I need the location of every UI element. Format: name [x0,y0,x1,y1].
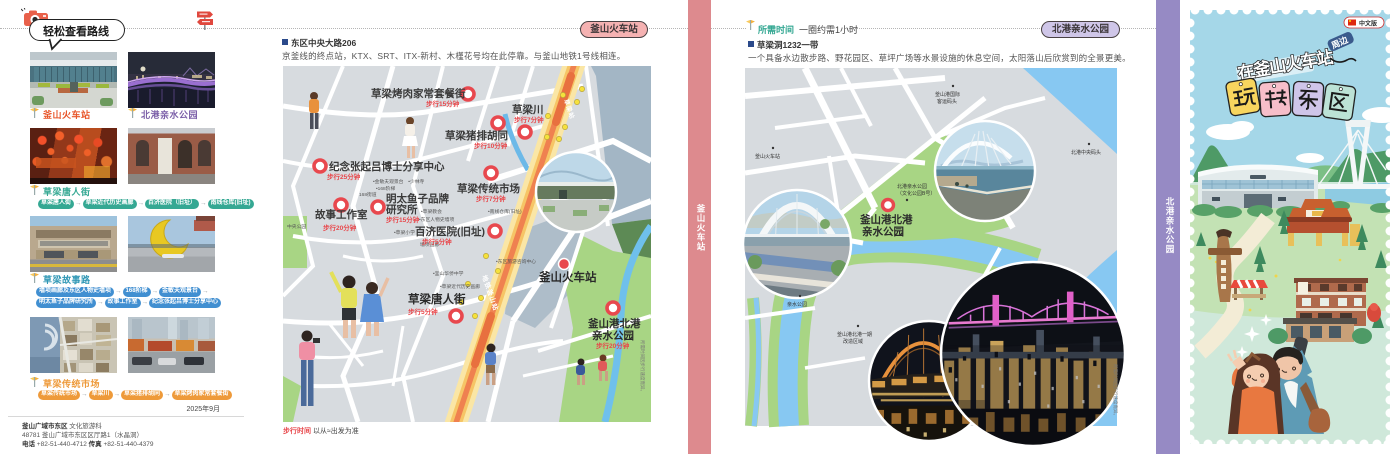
svg-text:步行25分钟: 步行25分钟 [327,172,361,181]
svg-text:草梁猪排胡同: 草梁猪排胡同 [445,129,508,142]
svg-text:步行15分钟: 步行15分钟 [426,99,460,108]
svg-text:所需时间因步行速度而异。: 所需时间因步行速度而异。 [639,340,646,394]
svg-text:•草梁教会: •草梁教会 [421,208,442,215]
svg-text:（文化公园B号）: （文化公园B号） [897,190,935,197]
svg-text:亲水公园: 亲水公园 [787,301,807,308]
svg-text:客运码头: 客运码头 [937,98,957,105]
svg-text:步行7分钟: 步行7分钟 [514,115,544,124]
svg-text:•釜山华侨中学: •釜山华侨中学 [433,270,464,277]
svg-text:草梁烤肉家常套餐街: 草梁烤肉家常套餐街 [371,87,466,100]
svg-text:中文版: 中文版 [1359,20,1377,28]
svg-text:北港亲水公园: 北港亲水公园 [897,183,927,190]
svg-text:•东区人物史墙项: •东区人物史墙项 [419,216,454,223]
svg-text:釜山港北港: 釜山港北港 [587,317,641,330]
svg-text:步行20分钟: 步行20分钟 [323,223,357,232]
svg-text:草梁唐人街: 草梁唐人街 [408,292,466,306]
svg-text:步行7分钟: 步行7分钟 [476,194,506,203]
svg-text:亲水公园: 亲水公园 [592,329,634,342]
svg-text:•金敏夫观景台 •少林寺: •金敏夫观景台 •少林寺 [373,178,425,185]
svg-text:•南线仓库(旧址): •南线仓库(旧址) [488,208,522,215]
svg-text:釜山火车站: 釜山火车站 [755,153,780,160]
svg-text:故事工作室: 故事工作室 [315,208,368,221]
svg-text:步行5分钟: 步行5分钟 [422,237,452,246]
svg-text:釜山港北港: 釜山港北港 [859,213,913,226]
svg-text:北港中央码头: 北港中央码头 [1071,149,1101,156]
svg-text:•草梁近代历史画廊: •草梁近代历史画廊 [440,283,480,290]
svg-text:釜山港北港一期: 釜山港北港一期 [837,331,872,338]
svg-text:改造区域: 改造区域 [843,338,863,345]
svg-text:亲水公园: 亲水公园 [862,225,904,238]
svg-text:步行20分钟: 步行20分钟 [596,341,630,350]
svg-text:•东区旅游咨询中心: •东区旅游咨询中心 [496,258,536,265]
svg-text:中央公园: 中央公园 [287,223,306,230]
svg-text:步行5分钟: 步行5分钟 [408,307,438,316]
svg-text:步行10分钟: 步行10分钟 [474,141,508,150]
svg-text:•168阶梯: •168阶梯 [376,185,395,192]
svg-text:研究所: 研究所 [386,203,418,216]
svg-text:釜山港国际: 釜山港国际 [935,91,960,98]
svg-text:纪念张起吕博士分享中心: 纪念张起吕博士分享中心 [329,160,445,173]
svg-text:168街道: 168街道 [359,191,377,198]
svg-text:•草梁小学: •草梁小学 [394,229,415,236]
svg-text:步行15分钟: 步行15分钟 [386,215,420,224]
svg-text:草梁川: 草梁川 [512,103,544,116]
svg-text:釜山火车站: 釜山火车站 [538,270,597,284]
svg-text:百济医院(旧址): 百济医院(旧址) [415,225,485,238]
svg-text:草梁传统市场: 草梁传统市场 [457,182,520,195]
svg-text:所需时间因步行速度而异。: 所需时间因步行速度而异。 [1112,364,1119,418]
